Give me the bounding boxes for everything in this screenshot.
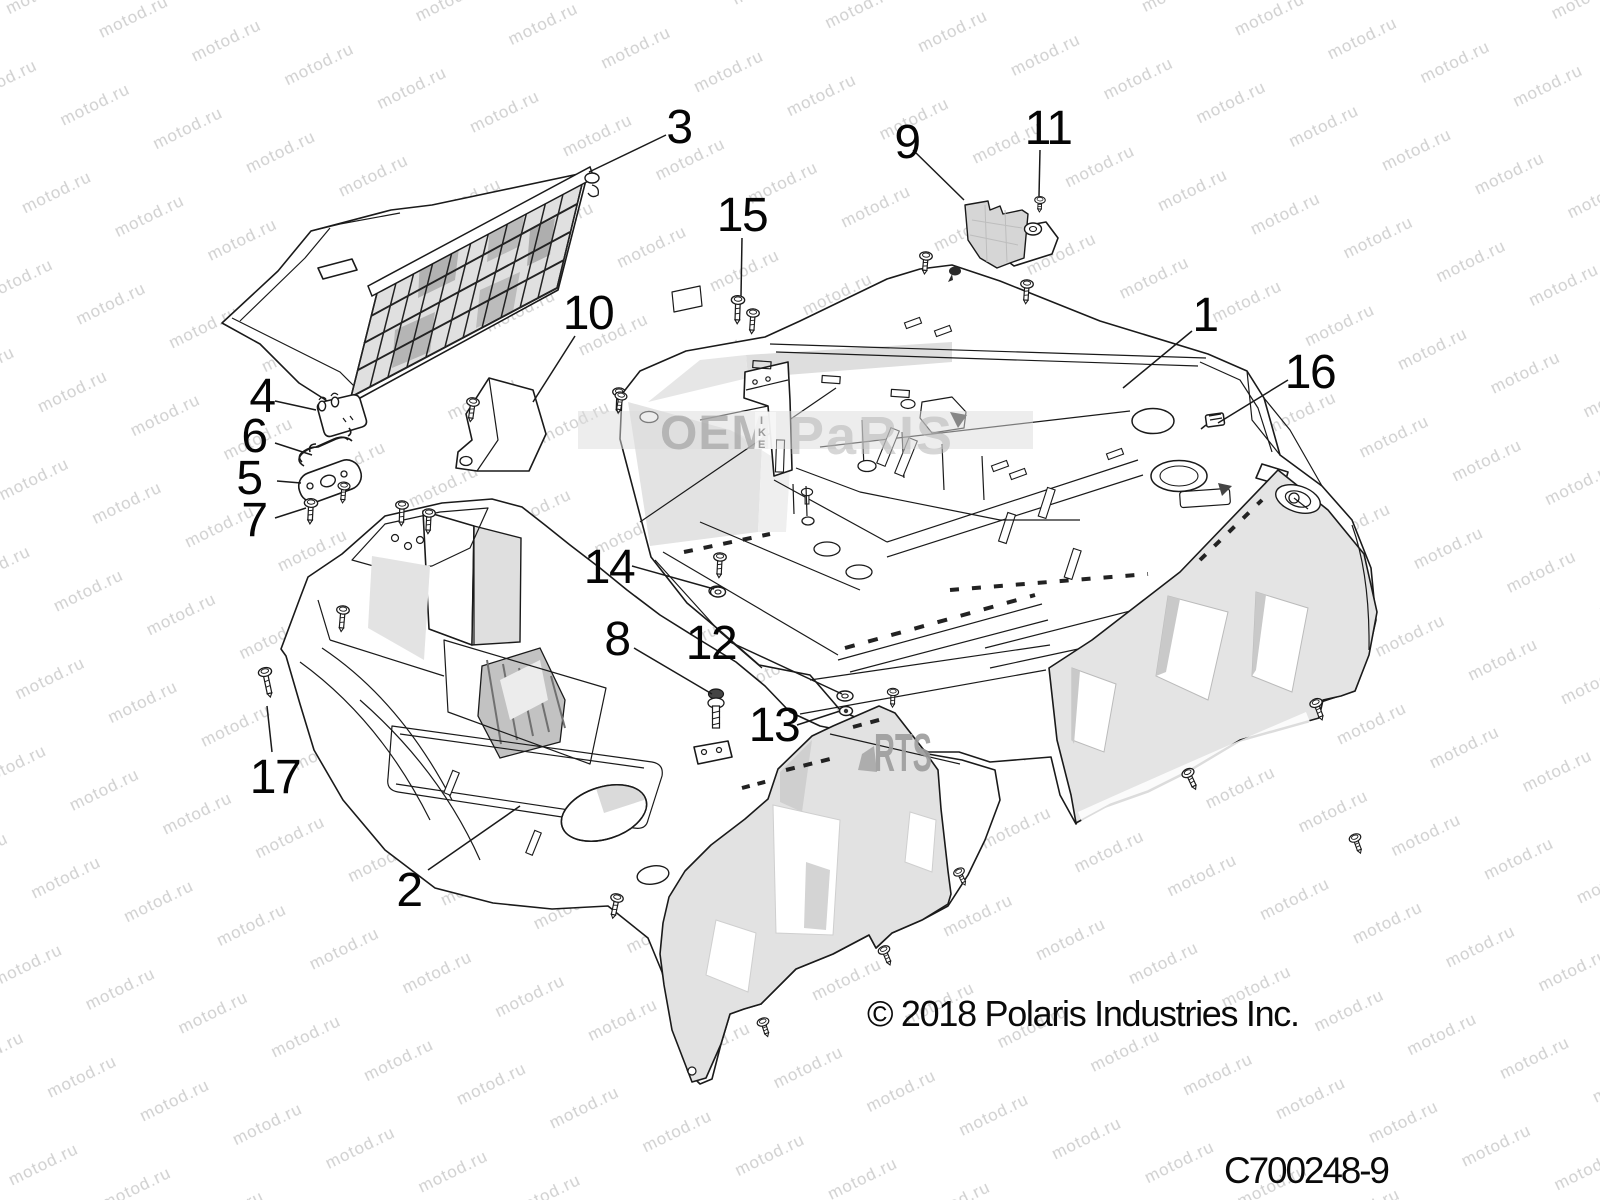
svg-text:17: 17: [250, 751, 300, 804]
svg-text:15: 15: [717, 189, 767, 242]
svg-text:K: K: [758, 427, 766, 439]
svg-text:13: 13: [749, 699, 799, 752]
svg-text:I: I: [760, 415, 763, 427]
svg-text:1: 1: [1192, 289, 1217, 342]
svg-text:E: E: [758, 439, 765, 451]
svg-text:12: 12: [686, 617, 736, 670]
svg-text:8: 8: [604, 613, 629, 666]
svg-text:7: 7: [241, 494, 266, 547]
svg-text:6: 6: [241, 410, 266, 463]
svg-text:© 2018 Polaris Industries Inc.: © 2018 Polaris Industries Inc.: [867, 993, 1300, 1034]
svg-text:11: 11: [1025, 102, 1072, 155]
svg-text:RTS: RTS: [874, 723, 932, 783]
svg-text:10: 10: [563, 287, 613, 340]
svg-text:C700248-9: C700248-9: [1224, 1150, 1390, 1191]
svg-text:3: 3: [666, 101, 691, 154]
svg-text:PaRIS: PaRIS: [788, 406, 954, 466]
svg-text:14: 14: [584, 541, 635, 594]
svg-text:2: 2: [396, 864, 421, 917]
svg-text:16: 16: [1285, 346, 1335, 399]
svg-text:9: 9: [894, 116, 919, 169]
